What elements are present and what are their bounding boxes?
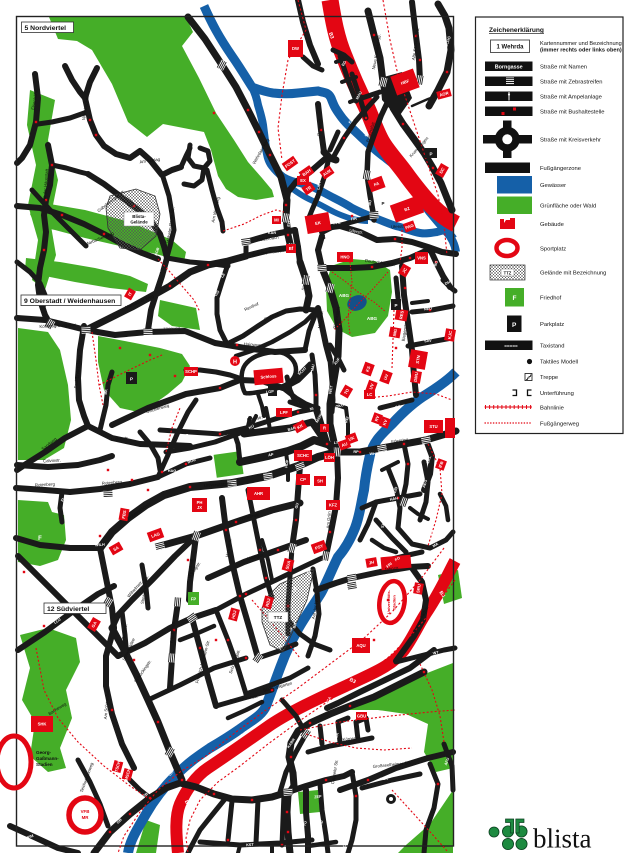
svg-text:LGP: LGP	[266, 390, 275, 395]
svg-text:Fußgängerweg: Fußgängerweg	[540, 422, 579, 428]
svg-text:SAV: SAV	[424, 339, 432, 344]
svg-text:Straße mit Ampelanlage: Straße mit Ampelanlage	[540, 95, 602, 101]
svg-text:GBU: GBU	[357, 714, 366, 719]
svg-text:WHB: WHB	[369, 452, 378, 456]
svg-text:Zeichenerklärung: Zeichenerklärung	[489, 27, 544, 34]
svg-text:Gebäude: Gebäude	[540, 222, 564, 228]
svg-text:HAG: HAG	[168, 469, 176, 473]
svg-text:Gelände mit Bezeichnung: Gelände mit Bezeichnung	[540, 271, 606, 277]
svg-text:AQU: AQU	[356, 643, 365, 648]
svg-text:Straße mit Kreisverkehr: Straße mit Kreisverkehr	[540, 138, 601, 144]
svg-text:CP: CP	[300, 477, 306, 482]
svg-text:VFB: VFB	[81, 809, 90, 814]
svg-text:KFZ: KFZ	[329, 503, 338, 508]
svg-text:EX: EX	[300, 178, 306, 183]
svg-text:Straße mit Namen: Straße mit Namen	[540, 65, 587, 71]
svg-text:P: P	[394, 303, 397, 308]
svg-text:FU: FU	[333, 125, 338, 129]
svg-text:Georg-: Georg-	[36, 750, 52, 755]
svg-text:Treppe: Treppe	[540, 375, 558, 381]
svg-text:9 Oberstadt / Weidenhausen: 9 Oberstadt / Weidenhausen	[24, 298, 115, 305]
svg-text:Straße mit Zebrastreifen: Straße mit Zebrastreifen	[540, 80, 603, 86]
svg-text:Calvinstr.: Calvinstr.	[43, 458, 61, 464]
svg-text:P: P	[130, 377, 133, 382]
svg-text:Blista-: Blista-	[132, 214, 146, 219]
svg-text:Parkplatz: Parkplatz	[540, 322, 564, 328]
svg-text:Friedhof: Friedhof	[540, 296, 562, 302]
svg-text:F: F	[38, 536, 42, 542]
svg-text:LÖH: LÖH	[325, 455, 334, 460]
svg-text:1 Wehrda: 1 Wehrda	[497, 45, 525, 51]
svg-text:KAR: KAR	[268, 231, 276, 235]
svg-text:Taktiles Modell: Taktiles Modell	[540, 360, 578, 366]
svg-text:=====: =====	[504, 345, 518, 350]
svg-text:Stadien: Stadien	[36, 762, 53, 767]
svg-text:Universitäts-: Universitäts-	[386, 589, 391, 614]
svg-text:Stadion: Stadion	[392, 595, 397, 610]
svg-text:Taxistand: Taxistand	[540, 344, 565, 350]
svg-text:MI: MI	[274, 218, 279, 223]
svg-text:H: H	[233, 359, 237, 365]
svg-text:Bahnlinie: Bahnlinie	[540, 406, 564, 412]
svg-text:Sportplatz: Sportplatz	[540, 247, 566, 253]
svg-text:Gaßmann-: Gaßmann-	[36, 756, 59, 761]
svg-text:Unterführung: Unterführung	[540, 391, 574, 397]
svg-text:Grünfläche oder Wald: Grünfläche oder Wald	[540, 204, 596, 210]
svg-text:(immer rechts oder links oben): (immer rechts oder links oben)	[540, 48, 622, 54]
svg-text:LPF: LPF	[280, 410, 288, 415]
svg-text:EK: EK	[315, 220, 322, 226]
svg-text:RP: RP	[353, 450, 359, 454]
svg-text:MR: MR	[82, 815, 90, 820]
svg-text:5 Nordviertel: 5 Nordviertel	[25, 25, 67, 32]
svg-text:ABG: ABG	[339, 293, 350, 298]
svg-text:Straße mit Bushaltestelle: Straße mit Bushaltestelle	[540, 110, 604, 116]
svg-text:JH: JH	[368, 560, 374, 566]
svg-text:ABG: ABG	[367, 316, 378, 321]
svg-text:AP: AP	[268, 453, 274, 458]
svg-text:Borngasse: Borngasse	[495, 65, 523, 71]
svg-text:ZEP: ZEP	[314, 795, 322, 800]
svg-text:P: P	[322, 236, 325, 241]
svg-text:JX: JX	[197, 505, 202, 510]
svg-text:P: P	[381, 201, 384, 206]
svg-text:R: R	[323, 426, 326, 431]
svg-text:SCHP: SCHP	[185, 369, 197, 374]
svg-text:Gewässer: Gewässer	[540, 183, 566, 189]
svg-text:Gelände: Gelände	[130, 220, 148, 225]
svg-text:SCHC: SCHC	[297, 453, 309, 458]
svg-text:Hainweg: Hainweg	[163, 326, 180, 332]
svg-text:LC: LC	[367, 392, 373, 397]
svg-text:P: P	[512, 322, 517, 329]
svg-text:HNO: HNO	[340, 255, 350, 260]
svg-text:FP: FP	[191, 597, 197, 602]
svg-text:SG: SG	[249, 273, 255, 277]
svg-text:AHR: AHR	[254, 491, 263, 496]
svg-text:SH: SH	[317, 479, 323, 484]
svg-text:Fußgängerzone: Fußgängerzone	[540, 166, 581, 172]
svg-text:blista: blista	[533, 824, 592, 854]
svg-text:Bf: Bf	[289, 246, 294, 251]
svg-text:RÜ: RÜ	[280, 268, 286, 275]
svg-text:TTZ: TTZ	[274, 615, 283, 620]
svg-text:KST: KST	[246, 843, 255, 848]
svg-text:P: P	[429, 152, 432, 157]
svg-text:F: F	[513, 295, 517, 302]
svg-text:TTZ: TTZ	[504, 270, 512, 275]
svg-text:SHK: SHK	[38, 722, 47, 727]
svg-text:STU: STU	[429, 424, 437, 429]
svg-text:LBT: LBT	[244, 395, 252, 399]
svg-text:Kartennummer und Bezeichnung: Kartennummer und Bezeichnung	[540, 41, 622, 47]
svg-text:12 Südviertel: 12 Südviertel	[47, 606, 89, 613]
svg-text:DW: DW	[292, 46, 299, 51]
svg-text:Uferstr.: Uferstr.	[391, 224, 405, 230]
svg-text:VNS: VNS	[417, 256, 426, 261]
svg-text:LT: LT	[334, 441, 339, 445]
